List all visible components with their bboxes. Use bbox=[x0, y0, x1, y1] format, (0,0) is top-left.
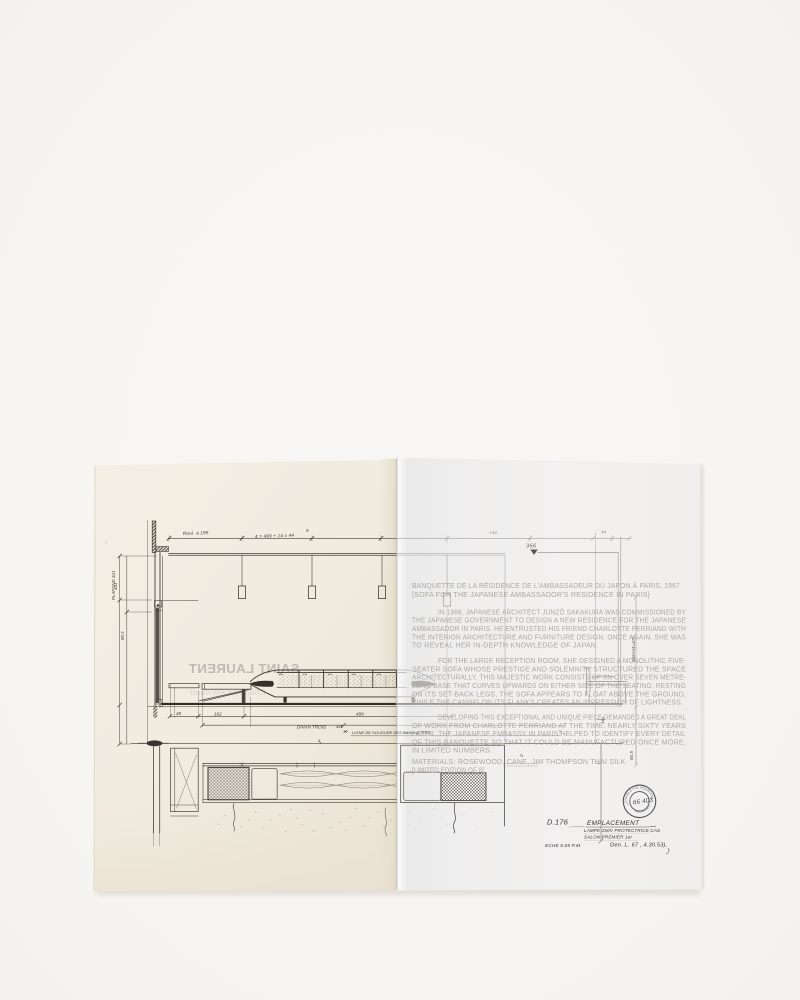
svg-text:499: 499 bbox=[356, 712, 364, 717]
svg-text:445: 445 bbox=[336, 724, 343, 729]
svg-text:[LIMITED EDITION OF 8]: [LIMITED EDITION OF 8] bbox=[412, 767, 484, 775]
svg-text:ARCHITECTURALLY. THIS MAJESTIC: ARCHITECTURALLY. THIS MAJESTIC WORK CONS… bbox=[412, 674, 686, 682]
svg-text:LAMPE 250V PROTECTRICE CAS: LAMPE 250V PROTECTRICE CAS bbox=[584, 828, 660, 833]
svg-text:OF THIS BANQUETTE SO THAT IT C: OF THIS BANQUETTE SO THAT IT COULD BE MA… bbox=[412, 738, 686, 746]
svg-text:FOR THE LARGE RECEPTION ROOM,: FOR THE LARGE RECEPTION ROOM, SHE DESIGN… bbox=[438, 657, 686, 665]
svg-text:LONG BASE THAT CURVES UPWARDS: LONG BASE THAT CURVES UPWARDS ON EITHER … bbox=[412, 682, 686, 690]
svg-text:SEATER SOFA WHOSE PRESTIGE AND: SEATER SOFA WHOSE PRESTIGE AND SOLEMNITY… bbox=[412, 665, 686, 673]
svg-text:LATER, THE JAPANESE EMBASSY IN: LATER, THE JAPANESE EMBASSY IN PARIS HEL… bbox=[412, 730, 686, 738]
svg-text:SAINT LAURENT: SAINT LAURENT bbox=[188, 661, 299, 676]
svg-text:TO REVEAL HER IN-DEPTH KNOWLED: TO REVEAL HER IN-DEPTH KNOWLEDGE OF JAPA… bbox=[412, 642, 598, 650]
svg-text:80.5: 80.5 bbox=[629, 751, 634, 760]
svg-text:IN 1966, JAPANESE ARCHITECT JU: IN 1966, JAPANESE ARCHITECT JUNZŌ SAKAKU… bbox=[438, 607, 686, 616]
svg-text:Roul. à 185: Roul. à 185 bbox=[183, 530, 209, 536]
svg-text:EMPLACEMENT: EMPLACEMENT bbox=[587, 820, 640, 827]
svg-text:AMBASSADOR IN PARIS. HE ENTRUS: AMBASSADOR IN PARIS. HE ENTRUSTED HIS FR… bbox=[412, 625, 686, 633]
svg-text:DIVAN TROIS: DIVAN TROIS bbox=[297, 725, 327, 730]
svg-text:THE INTERIOR ARCHITECTURE AND: THE INTERIOR ARCHITECTURE AND FURNITURE … bbox=[412, 633, 686, 641]
svg-text:PLAFOND 341: PLAFOND 341 bbox=[111, 570, 116, 600]
svg-text:80.5: 80.5 bbox=[120, 631, 125, 640]
svg-text:SALON PREMIER 1er: SALON PREMIER 1er bbox=[584, 835, 632, 840]
svg-text:D.176: D.176 bbox=[547, 818, 569, 827]
svg-text:THE JAPANESE GOVERNMENT TO DES: THE JAPANESE GOVERNMENT TO DESIGN A NEW … bbox=[412, 617, 686, 625]
svg-text:MATERIALS: ROSEWOOD, CANE, JIM: MATERIALS: ROSEWOOD, CANE, JIM THOMPSON … bbox=[412, 758, 626, 766]
svg-text:ON ITS SET-BACK LEGS, THE SOFA: ON ITS SET-BACK LEGS, THE SOFA APPEARS T… bbox=[412, 690, 686, 698]
svg-text:44: 44 bbox=[601, 530, 607, 535]
svg-text:IN LIMITED NUMBERS.: IN LIMITED NUMBERS. bbox=[412, 747, 492, 755]
svg-text:DEVELOPING THIS EXCEPTIONAL AN: DEVELOPING THIS EXCEPTIONAL AND UNIQUE P… bbox=[438, 714, 686, 722]
svg-text:OF WORK FROM CHARLOTTE PERRIAN: OF WORK FROM CHARLOTTE PERRIAND AT THE T… bbox=[412, 722, 686, 730]
svg-text:5: 5 bbox=[306, 528, 309, 533]
svg-text:162: 162 bbox=[214, 711, 222, 716]
svg-text:366: 366 bbox=[526, 544, 537, 550]
svg-text:Gen. L. 67 , 4.30.53).: Gen. L. 67 , 4.30.53). bbox=[610, 843, 668, 849]
svg-text:BANQUETTE DE LA RÉSIDENCE DE L: BANQUETTE DE LA RÉSIDENCE DE L'AMBASSADE… bbox=[412, 581, 680, 590]
svg-text:ECHE 0.05 P.M.: ECHE 0.05 P.M. bbox=[545, 843, 582, 848]
svg-text:WHILE THE CANING ON ITS FLANKS: WHILE THE CANING ON ITS FLANKS CREATES A… bbox=[412, 699, 683, 707]
svg-text:45: 45 bbox=[176, 711, 182, 716]
svg-text:[SOFA FOR THE JAPANESE AMBASSA: [SOFA FOR THE JAPANESE AMBASSADOR'S RESI… bbox=[412, 591, 650, 599]
svg-text:+44: +44 bbox=[489, 530, 497, 535]
